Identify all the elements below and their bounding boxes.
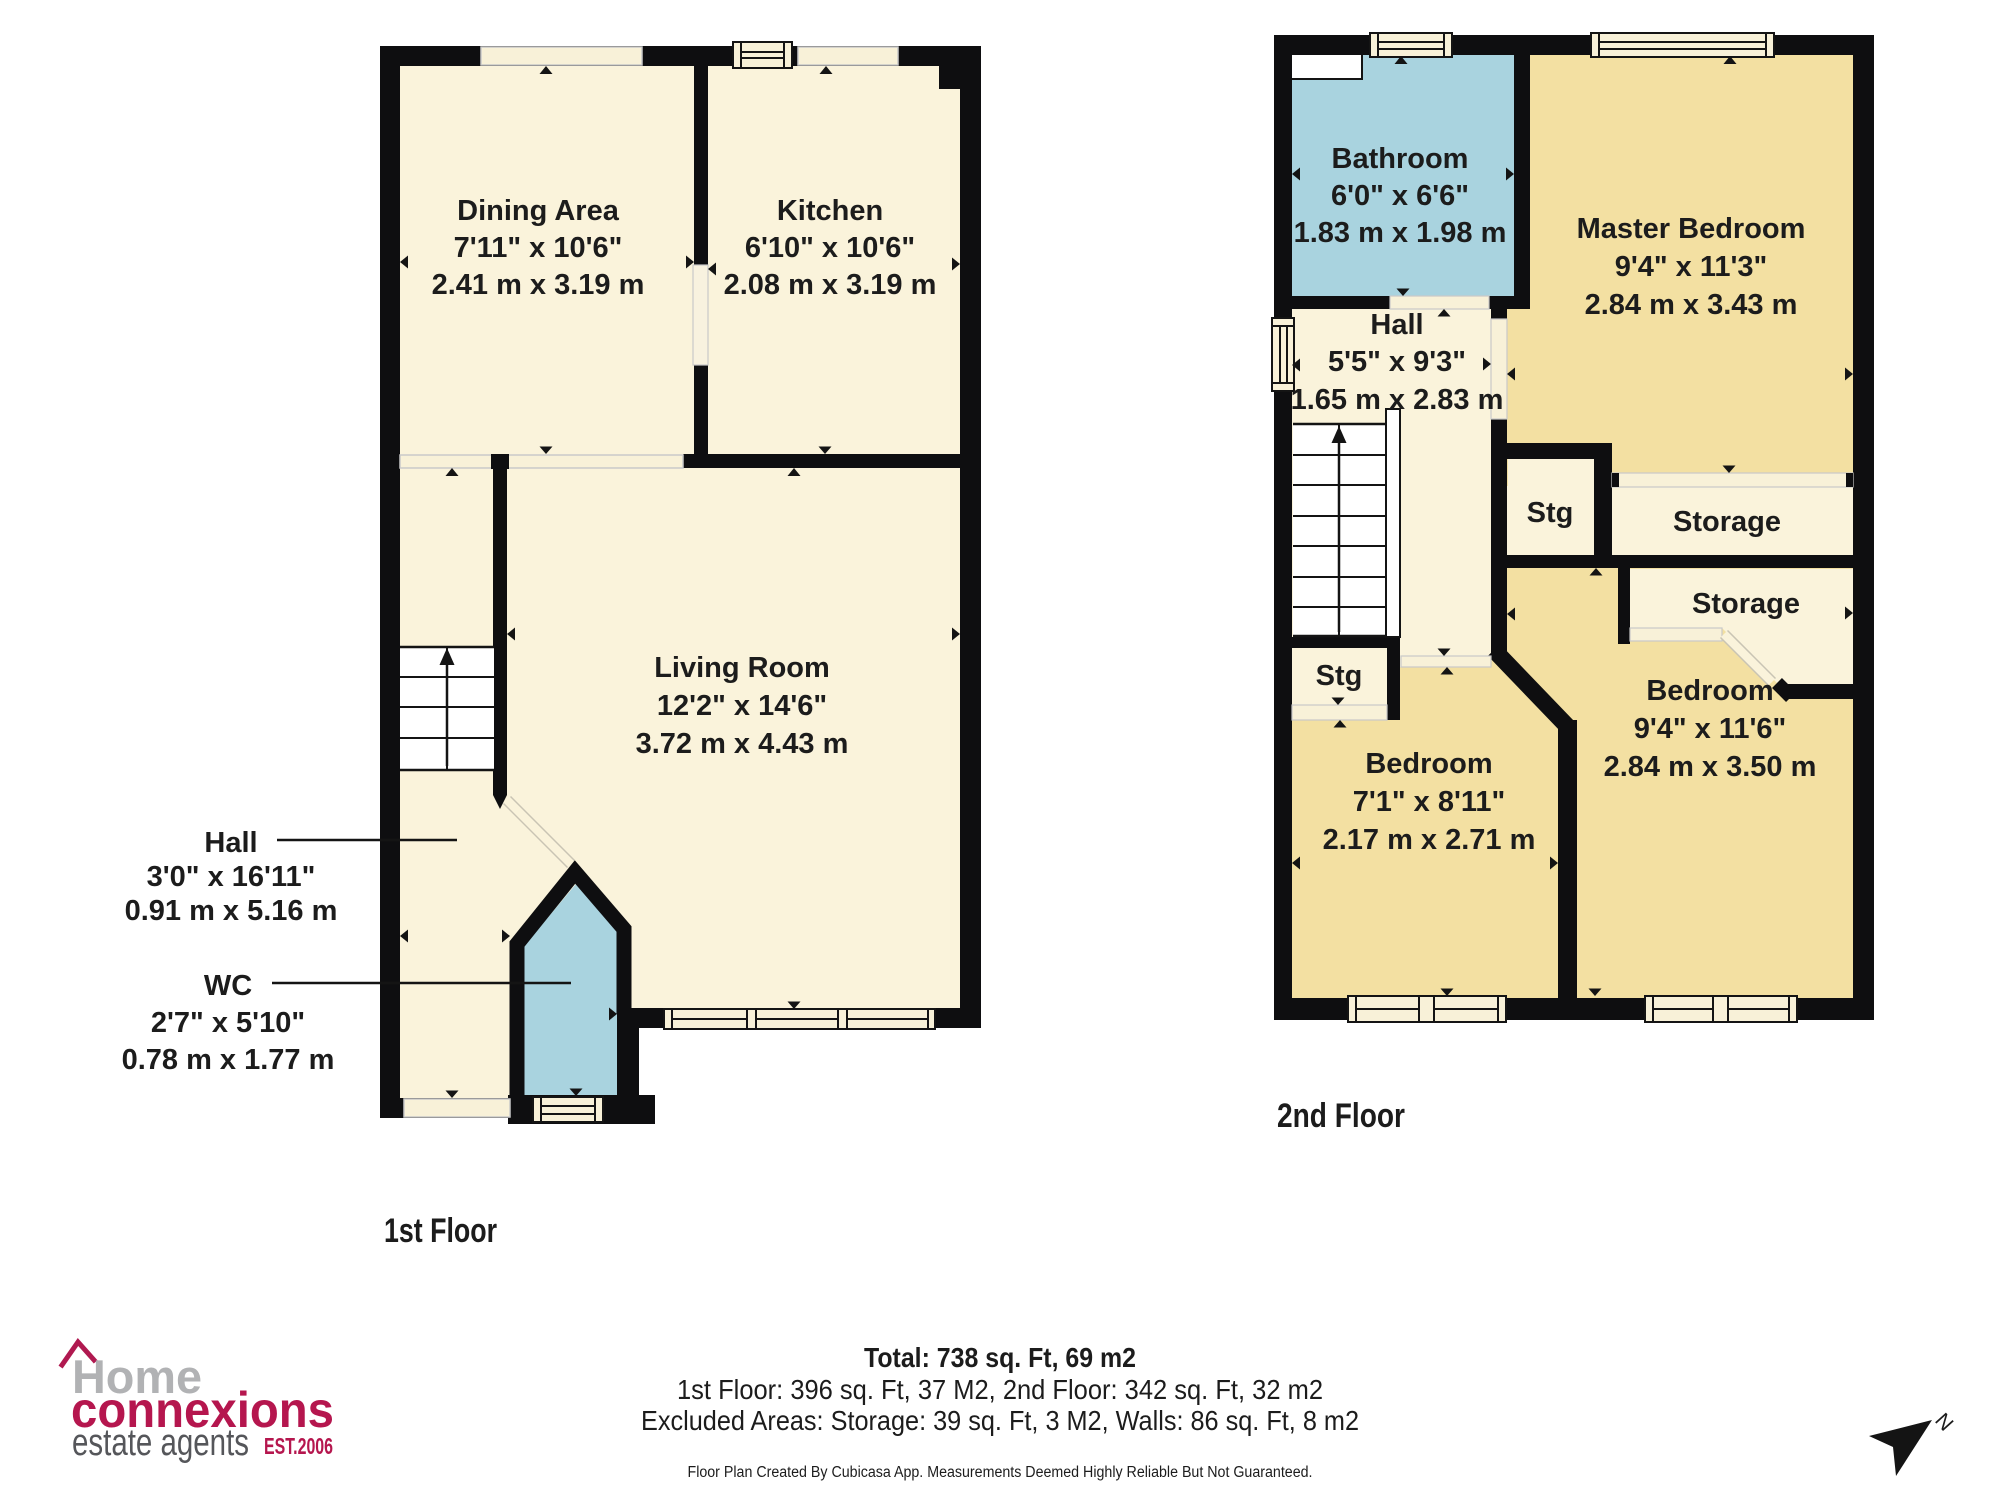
svg-text:Living Room: Living Room [654, 652, 830, 684]
svg-text:6'10" x 10'6": 6'10" x 10'6" [745, 232, 915, 264]
svg-text:1st Floor: 396 sq. Ft, 37 M2,: 1st Floor: 396 sq. Ft, 37 M2, 2nd Floor:… [677, 1374, 1323, 1405]
svg-text:0.78 m x 1.77 m: 0.78 m x 1.77 m [122, 1044, 335, 1076]
svg-text:3'0" x 16'11": 3'0" x 16'11" [147, 861, 316, 893]
svg-text:WC: WC [204, 970, 252, 1002]
svg-text:2.84 m x 3.50 m: 2.84 m x 3.50 m [1604, 751, 1817, 783]
svg-text:2nd Floor: 2nd Floor [1277, 1097, 1405, 1135]
svg-text:12'2" x 14'6": 12'2" x 14'6" [657, 690, 827, 722]
svg-text:2.41 m x 3.19 m: 2.41 m x 3.19 m [432, 269, 645, 301]
svg-text:1.83 m x 1.98 m: 1.83 m x 1.98 m [1294, 217, 1507, 249]
svg-text:Bathroom: Bathroom [1332, 143, 1469, 175]
svg-text:7'11" x 10'6": 7'11" x 10'6" [454, 232, 623, 264]
svg-text:3.72 m x 4.43 m: 3.72 m x 4.43 m [636, 728, 849, 760]
svg-text:Kitchen: Kitchen [777, 195, 883, 227]
svg-text:2.08 m x 3.19 m: 2.08 m x 3.19 m [724, 269, 937, 301]
svg-text:6'0" x 6'6": 6'0" x 6'6" [1331, 180, 1469, 212]
svg-text:Total: 738 sq. Ft, 69 m2: Total: 738 sq. Ft, 69 m2 [864, 1342, 1136, 1373]
svg-text:5'5" x 9'3": 5'5" x 9'3" [1328, 346, 1466, 378]
svg-text:1.65 m x 2.83 m: 1.65 m x 2.83 m [1291, 384, 1504, 416]
svg-text:9'4" x 11'3": 9'4" x 11'3" [1615, 251, 1768, 283]
svg-text:Hall: Hall [1370, 309, 1423, 341]
svg-text:Stg: Stg [1527, 497, 1574, 529]
svg-text:estate agents: estate agents [72, 1422, 249, 1464]
svg-text:Floor Plan Created By Cubicasa: Floor Plan Created By Cubicasa App. Meas… [688, 1464, 1313, 1481]
svg-text:Excluded Areas: Storage: 39 sq: Excluded Areas: Storage: 39 sq. Ft, 3 M2… [641, 1405, 1359, 1436]
svg-text:2'7" x 5'10": 2'7" x 5'10" [151, 1007, 305, 1039]
svg-text:EST.2006: EST.2006 [264, 1433, 333, 1459]
svg-text:0.91 m x 5.16 m: 0.91 m x 5.16 m [125, 895, 338, 927]
svg-text:2.17 m x 2.71 m: 2.17 m x 2.71 m [1323, 824, 1536, 856]
svg-text:Hall: Hall [204, 827, 257, 859]
svg-text:Bedroom: Bedroom [1646, 675, 1773, 707]
svg-text:9'4" x 11'6": 9'4" x 11'6" [1634, 713, 1787, 745]
svg-text:Stg: Stg [1316, 660, 1363, 692]
svg-text:Storage: Storage [1692, 588, 1800, 620]
svg-text:Storage: Storage [1673, 506, 1781, 538]
svg-text:Dining Area: Dining Area [457, 195, 620, 227]
svg-text:2.84 m x 3.43 m: 2.84 m x 3.43 m [1585, 289, 1798, 321]
svg-text:Master Bedroom: Master Bedroom [1577, 213, 1806, 245]
svg-text:Bedroom: Bedroom [1365, 748, 1492, 780]
svg-text:1st Floor: 1st Floor [384, 1212, 497, 1250]
svg-text:7'1" x 8'11": 7'1" x 8'11" [1353, 786, 1506, 818]
